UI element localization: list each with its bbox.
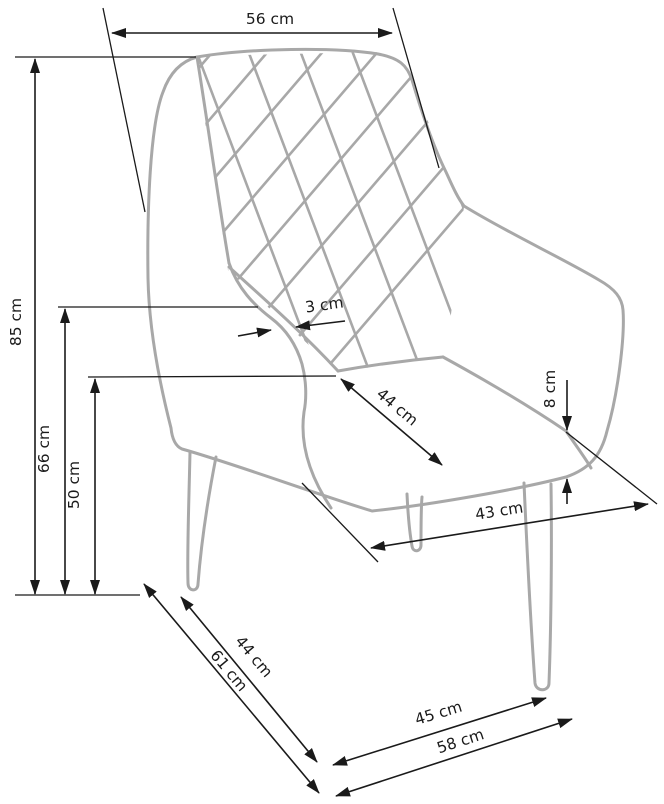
label-back-width-top: 56 cm xyxy=(246,10,294,28)
chair-drawing xyxy=(0,20,625,690)
label-armrest-height: 66 cm xyxy=(35,425,53,473)
label-seat-depth: 44 cm xyxy=(373,385,422,430)
ext-43-right xyxy=(566,432,657,504)
dim-total-width xyxy=(336,719,572,796)
dim-armrest-thickness-left xyxy=(238,330,271,336)
front-left-leg xyxy=(188,452,216,590)
ext-50 xyxy=(88,376,336,377)
label-seat-height: 50 cm xyxy=(65,461,83,509)
ext-43-left xyxy=(302,483,378,562)
label-total-height: 85 cm xyxy=(7,298,25,346)
label-armrest-thickness: 3 cm xyxy=(304,293,345,316)
dim-armrest-thickness-right xyxy=(296,321,345,327)
ext-56-right xyxy=(393,8,439,168)
ext-56-left xyxy=(103,8,145,212)
front-right-leg xyxy=(524,483,551,690)
label-front-leg-spacing: 45 cm xyxy=(413,698,464,729)
label-seat-cushion-height: 8 cm xyxy=(541,370,559,408)
label-base-depth: 43 cm xyxy=(474,498,525,523)
dimension-labels: 56 cm 85 cm 66 cm 50 cm 3 cm 44 cm 8 cm … xyxy=(7,10,559,757)
quilt-lattice xyxy=(0,20,625,410)
dimension-lines xyxy=(35,33,648,796)
dimension-annotations xyxy=(15,8,657,796)
diagram-canvas: 56 cm 85 cm 66 cm 50 cm 3 cm 44 cm 8 cm … xyxy=(0,0,664,804)
chair-dimension-diagram: 56 cm 85 cm 66 cm 50 cm 3 cm 44 cm 8 cm … xyxy=(0,0,664,804)
seat-back-edge-left xyxy=(338,357,443,371)
dim-total-depth xyxy=(144,584,319,793)
